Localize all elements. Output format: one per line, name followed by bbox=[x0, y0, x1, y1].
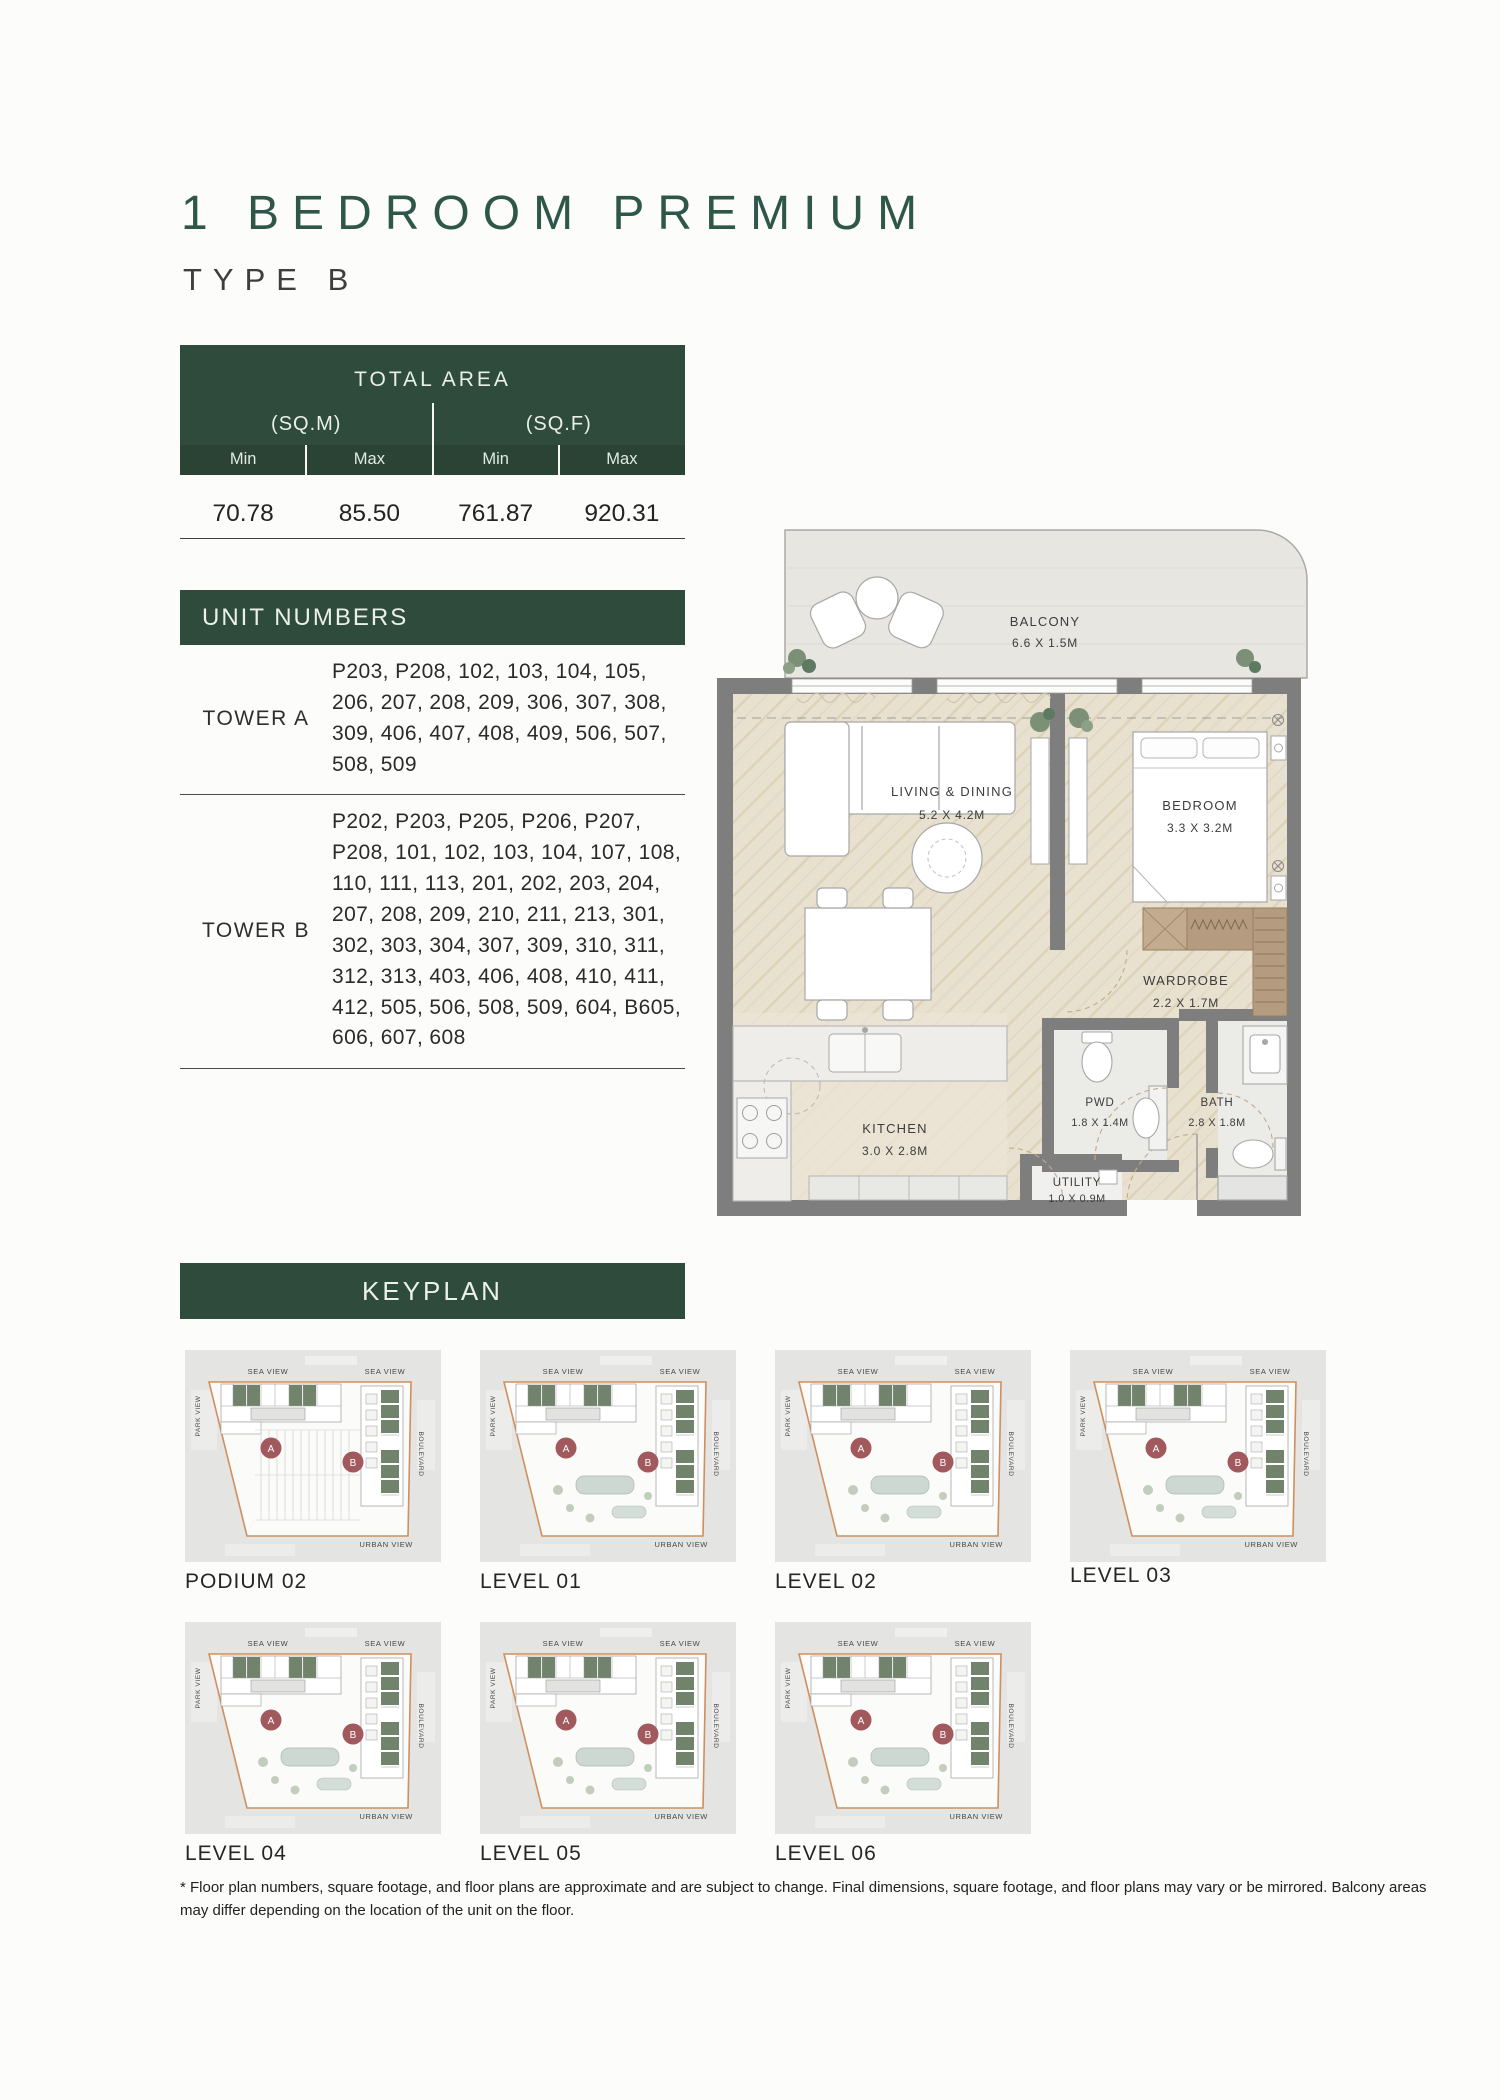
unit-numbers-title: UNIT NUMBERS bbox=[180, 590, 685, 645]
keyplan-thumbnail-level-06 bbox=[775, 1622, 1031, 1834]
tower-a-row: TOWER A P203, P208, 102, 103, 104, 105, … bbox=[180, 645, 685, 795]
room-dims-pwd: 1.8 X 1.4M bbox=[1071, 1117, 1128, 1129]
room-dims-bath: 2.8 X 1.8M bbox=[1188, 1117, 1245, 1129]
room-label-pwd: PWD bbox=[1085, 1097, 1114, 1109]
entry-door-gap bbox=[1127, 1200, 1197, 1216]
sqf-max-label: Max bbox=[559, 445, 685, 475]
sqf-min-label: Min bbox=[433, 445, 559, 475]
keyplan-thumbnail-podium-02 bbox=[185, 1350, 441, 1562]
brochure-page: 1 BEDROOM PREMIUM TYPE B TOTAL AREA (SQ.… bbox=[0, 0, 1500, 2100]
room-dims-wardrobe: 2.2 X 1.7M bbox=[1153, 996, 1219, 1010]
keyplan-label-level-02: LEVEL 02 bbox=[775, 1570, 877, 1594]
tower-a-units: P203, P208, 102, 103, 104, 105, 206, 207… bbox=[332, 657, 685, 780]
page-subtitle: TYPE B bbox=[183, 262, 359, 298]
keyplan-title: KEYPLAN bbox=[180, 1263, 685, 1319]
keyplan-label-level-06: LEVEL 06 bbox=[775, 1842, 877, 1866]
table-divider bbox=[558, 445, 560, 475]
sqm-min-label: Min bbox=[180, 445, 306, 475]
tower-b-row: TOWER B P202, P203, P205, P206, P207, P2… bbox=[180, 795, 685, 1069]
table-divider bbox=[305, 445, 307, 475]
tower-a-label: TOWER A bbox=[180, 657, 332, 780]
room-label-bath: BATH bbox=[1200, 1097, 1233, 1109]
floor-plan: BALCONY 6.6 X 1.5M LIVING & DINING 5.2 X… bbox=[697, 526, 1315, 1216]
utility-fixture bbox=[1099, 1170, 1117, 1184]
room-label-wardrobe: WARDROBE bbox=[1143, 973, 1229, 988]
room-label-bedroom: BEDROOM bbox=[1162, 798, 1238, 813]
sqm-max-label: Max bbox=[306, 445, 432, 475]
keyplan-thumbnail-level-02 bbox=[775, 1350, 1031, 1562]
room-dims-kitchen: 3.0 X 2.8M bbox=[862, 1144, 928, 1158]
keyplan-label-level-03: LEVEL 03 bbox=[1070, 1564, 1172, 1588]
room-label-balcony: BALCONY bbox=[1010, 614, 1081, 629]
keyplan-label-level-04: LEVEL 04 bbox=[185, 1842, 287, 1866]
sqm-group-label: (SQ.M) bbox=[180, 407, 433, 445]
keyplan-thumbnail-level-03 bbox=[1070, 1350, 1326, 1562]
keyplan-label-level-05: LEVEL 05 bbox=[480, 1842, 582, 1866]
sqf-max-value: 920.31 bbox=[559, 475, 685, 538]
table-divider bbox=[432, 403, 434, 475]
page-title: 1 BEDROOM PREMIUM bbox=[181, 186, 930, 241]
sqm-max-value: 85.50 bbox=[306, 475, 432, 538]
total-area-header-block: TOTAL AREA (SQ.M) (SQ.F) Min Max Min Max bbox=[180, 345, 685, 475]
floor-plan-svg: BALCONY 6.6 X 1.5M LIVING & DINING 5.2 X… bbox=[697, 526, 1315, 1216]
sqf-min-value: 761.87 bbox=[433, 475, 559, 538]
keyplan-label-level-01: LEVEL 01 bbox=[480, 1570, 582, 1594]
keyplan-label-podium-02: PODIUM 02 bbox=[185, 1570, 307, 1594]
keyplan-thumbnail-level-05 bbox=[480, 1622, 736, 1834]
keyplan-thumbnail-level-04 bbox=[185, 1622, 441, 1834]
room-dims-bedroom: 3.3 X 3.2M bbox=[1167, 821, 1233, 835]
room-label-kitchen: KITCHEN bbox=[862, 1121, 927, 1136]
keyplan-thumbnail-level-01 bbox=[480, 1350, 736, 1562]
dining-set bbox=[805, 888, 931, 1020]
sqf-group-label: (SQ.F) bbox=[433, 407, 686, 445]
total-area-title: TOTAL AREA bbox=[180, 345, 685, 407]
unit-numbers-table: UNIT NUMBERS TOWER A P203, P208, 102, 10… bbox=[180, 590, 685, 1069]
room-label-living: LIVING & DINING bbox=[891, 784, 1013, 799]
room-dims-living: 5.2 X 4.2M bbox=[919, 808, 985, 822]
tower-b-label: TOWER B bbox=[180, 807, 332, 1054]
room-label-utility: UTILITY bbox=[1053, 1177, 1101, 1189]
windows bbox=[792, 679, 1252, 693]
tower-b-units: P202, P203, P205, P206, P207, P208, 101,… bbox=[332, 807, 685, 1054]
total-area-table: TOTAL AREA (SQ.M) (SQ.F) Min Max Min Max… bbox=[180, 345, 685, 539]
coffee-table bbox=[912, 823, 982, 893]
bed bbox=[1133, 732, 1267, 902]
room-dims-utility: 1.0 X 0.9M bbox=[1048, 1193, 1105, 1205]
room-dims-balcony: 6.6 X 1.5M bbox=[1012, 636, 1078, 650]
sqm-min-value: 70.78 bbox=[180, 475, 306, 538]
total-area-values-row: 70.78 85.50 761.87 920.31 bbox=[180, 475, 685, 539]
disclaimer-text: * Floor plan numbers, square footage, an… bbox=[180, 1876, 1436, 1923]
